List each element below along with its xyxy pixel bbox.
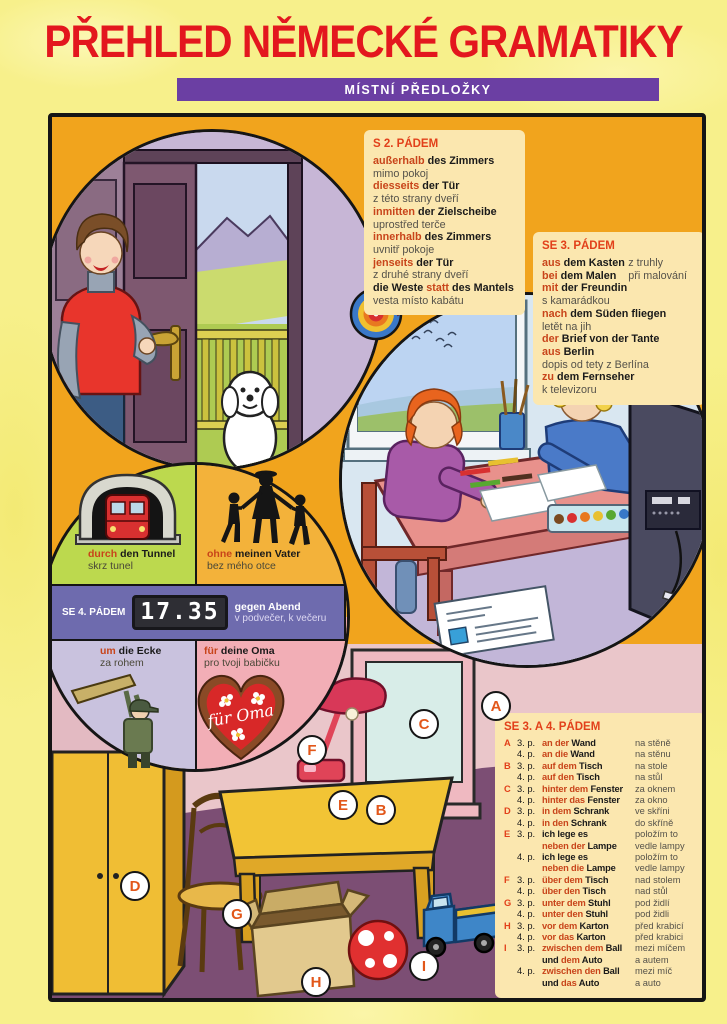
german-text: die Weste bbox=[373, 282, 426, 294]
phrase-line: letět na jih bbox=[542, 321, 696, 334]
preposition: hinter das bbox=[542, 795, 585, 805]
brush-cup bbox=[500, 413, 524, 449]
german-text: der Freundin bbox=[558, 282, 627, 294]
case-label: 4. p. bbox=[517, 909, 542, 920]
czech-text: z této strany dveří bbox=[373, 193, 459, 205]
case-label: 4. p. bbox=[517, 818, 542, 829]
german-text: der Tür bbox=[413, 257, 453, 269]
german-text: der Tür bbox=[419, 180, 459, 192]
row-letter bbox=[504, 818, 517, 829]
german-phrase: neben die Lampe bbox=[542, 863, 635, 874]
czech-text: vesta místo kabátu bbox=[373, 295, 464, 307]
table-row: 4. p.über den Tischnad stůl bbox=[504, 886, 697, 897]
czech-translation: na stěně bbox=[635, 738, 697, 749]
row-letter bbox=[504, 841, 517, 852]
german-phrase: zwischen den Ball bbox=[542, 966, 635, 977]
ball bbox=[349, 921, 407, 979]
phrase-line: s kamarádkou bbox=[542, 295, 696, 308]
row-letter bbox=[504, 795, 517, 806]
preposition: auf den bbox=[542, 772, 574, 782]
czech-translation: pod židlí bbox=[635, 898, 697, 909]
preposition: an der bbox=[542, 738, 569, 748]
german-phrase: auf den Tisch bbox=[542, 772, 635, 783]
case-label: 3. p. bbox=[517, 761, 542, 772]
subtitle-banner: MÍSTNÍ PŘEDLOŽKY bbox=[177, 78, 659, 101]
se3-lines: aus dem Kastenz truhlybei dem Malenpři m… bbox=[542, 257, 696, 397]
table-row: 4. p.ich lege espoložím to bbox=[504, 852, 697, 863]
german-text: meinen Vater bbox=[232, 548, 300, 560]
dog-icon bbox=[222, 372, 278, 468]
se34-heading: SE 3. A 4. PÁDEM bbox=[504, 721, 697, 733]
german-text: dem Kasten bbox=[561, 257, 625, 269]
czech-text: mimo pokoj bbox=[373, 168, 428, 180]
case-label: 3. p. bbox=[517, 875, 542, 886]
preposition: durch bbox=[88, 548, 117, 560]
phrase-line: vesta místo kabátu bbox=[373, 295, 516, 308]
phrase-line: uprostřed terče bbox=[373, 219, 516, 232]
row-letter: I bbox=[504, 943, 517, 954]
preposition: neben die bbox=[542, 863, 584, 873]
case-label: 3. p. bbox=[517, 806, 542, 817]
german-text: den Tunnel bbox=[117, 548, 175, 560]
czech-translation: položím to bbox=[635, 829, 697, 840]
german-phrase: über dem Tisch bbox=[542, 875, 635, 886]
row-letter bbox=[504, 955, 517, 966]
german-phrase: zwischen dem Ball bbox=[542, 943, 635, 954]
phrase-line: diesseits der Tür bbox=[373, 180, 516, 193]
preposition: außerhalb bbox=[373, 155, 425, 167]
table-row: 4. p.vor das Kartonpřed krabici bbox=[504, 932, 697, 943]
german-phrase: vor dem Karton bbox=[542, 921, 635, 932]
letter-badge-F: F bbox=[297, 735, 327, 765]
german-text: Wand bbox=[568, 749, 595, 759]
grammar-poster: { "title": "PŘEHLED NĚMECKÉ GRAMATIKY", … bbox=[0, 0, 727, 1024]
czech-text: k televizoru bbox=[542, 384, 597, 396]
table-row: H3. p.vor dem Kartonpřed krabicí bbox=[504, 921, 697, 932]
caption-um: um die Eckeza rohem bbox=[100, 645, 161, 669]
phrase-line: aus Berlin bbox=[542, 346, 696, 359]
german-text: des Zimmers bbox=[422, 231, 492, 243]
row-letter: H bbox=[504, 921, 517, 932]
german-text: der Zielscheibe bbox=[415, 206, 497, 218]
row-letter bbox=[504, 932, 517, 943]
gingerbread-heart: für Oma bbox=[190, 669, 292, 764]
phrase-line: nach dem Süden fliegen bbox=[542, 308, 696, 321]
caption-durch: durch den Tunnelskrz tunel bbox=[88, 548, 175, 572]
czech-translation: nad stůl bbox=[635, 886, 697, 897]
czech-translation: před krabici bbox=[635, 932, 697, 943]
se34-section: SE 3. A 4. PÁDEM A3. p.an der Wandna stě… bbox=[495, 713, 706, 998]
table-row: D3. p.in dem Schrankve skříni bbox=[504, 806, 697, 817]
row-letter: G bbox=[504, 898, 517, 909]
german-text: Tisch bbox=[574, 772, 600, 782]
se3-section: SE 3. PÁDEM aus dem Kastenz truhlybei de… bbox=[533, 232, 705, 405]
czech-text: letět na jih bbox=[542, 321, 591, 333]
czech-translation: pod židli bbox=[635, 909, 697, 920]
row-letter bbox=[504, 863, 517, 874]
czech-translation: ve skříni bbox=[635, 806, 697, 817]
case-label: 4. p. bbox=[517, 749, 542, 760]
czech-translation: položím to bbox=[635, 852, 697, 863]
case-label bbox=[517, 841, 542, 852]
czech-text: dopis od tety z Berlína bbox=[542, 359, 649, 371]
czech-text: z druhé strany dveří bbox=[373, 269, 468, 281]
phrase-line: bei dem Malenpři malování bbox=[542, 270, 696, 283]
row-letter: B bbox=[504, 761, 517, 772]
table-row: 4. p.zwischen den Ballmezi míč bbox=[504, 966, 697, 977]
german-text: Schrank bbox=[568, 818, 606, 828]
preposition: für bbox=[204, 645, 218, 657]
preposition: in dem bbox=[542, 806, 571, 816]
se3-heading: SE 3. PÁDEM bbox=[542, 240, 696, 252]
door-scene-illustration bbox=[48, 132, 380, 468]
row-letter: A bbox=[504, 738, 517, 749]
table-row: neben der Lampevedle lampy bbox=[504, 841, 697, 852]
family-silhouette-icon bbox=[204, 467, 329, 547]
case-label: 4. p. bbox=[517, 852, 542, 863]
tv-icon bbox=[630, 391, 706, 643]
preposition: mit bbox=[542, 282, 558, 294]
letter-badge-C: C bbox=[409, 709, 439, 739]
german-phrase: und dem Auto bbox=[542, 955, 635, 966]
german-phrase: ich lege es bbox=[542, 852, 635, 863]
table-row: G3. p.unter dem Stuhlpod židlí bbox=[504, 898, 697, 909]
german-text: Tisch bbox=[583, 875, 609, 885]
table-row: A3. p.an der Wandna stěně bbox=[504, 738, 697, 749]
table-row: B3. p.auf dem Tischna stole bbox=[504, 761, 697, 772]
letter-badge-A: A bbox=[481, 691, 511, 721]
table-row: C3. p.hinter dem Fensterza oknem bbox=[504, 784, 697, 795]
phrase-line: jenseits der Tür bbox=[373, 257, 516, 270]
band-german-phrase: gegen Abend bbox=[235, 601, 327, 613]
german-text: ich lege es bbox=[542, 829, 588, 839]
preposition: nach bbox=[542, 308, 567, 320]
czech-translation: na stěnu bbox=[635, 749, 697, 760]
czech-translation: mezi míčem bbox=[635, 943, 697, 954]
preposition: aus bbox=[542, 346, 561, 358]
woman-hand bbox=[139, 338, 155, 354]
german-text: dem Malen bbox=[558, 270, 617, 282]
table-row: 4. p.an die Wandna stěnu bbox=[504, 749, 697, 760]
table-row: neben die Lampevedle lampy bbox=[504, 863, 697, 874]
case-label: 4. p. bbox=[517, 886, 542, 897]
se4-heading: SE 4. PÁDEM bbox=[62, 607, 125, 618]
german-phrase: über den Tisch bbox=[542, 886, 635, 897]
german-text: Brief von der Tante bbox=[559, 333, 660, 345]
door-scene-circle bbox=[48, 129, 383, 471]
preposition: zwischen dem bbox=[542, 943, 603, 953]
german-phrase: auf dem Tisch bbox=[542, 761, 635, 772]
phrase-line: zu dem Fernseher bbox=[542, 371, 696, 384]
band-czech-translation: v podvečer, k večeru bbox=[235, 613, 327, 625]
german-text: Wand bbox=[569, 738, 596, 748]
czech-translation: vedle lampy bbox=[635, 841, 697, 852]
preposition: zwischen den bbox=[542, 966, 601, 976]
preposition: an die bbox=[542, 749, 568, 759]
row-letter bbox=[504, 772, 517, 783]
table-row: 4. p.hinter das Fensterza okno bbox=[504, 795, 697, 806]
phrase-line: innerhalb des Zimmers bbox=[373, 231, 516, 244]
czech-text: s kamarádkou bbox=[542, 295, 610, 307]
german-text: Stuhl bbox=[583, 909, 608, 919]
german-text: des Mantels bbox=[449, 282, 514, 294]
table-row: 4. p.auf den Tischna stůl bbox=[504, 772, 697, 783]
preposition: aus bbox=[542, 257, 561, 269]
case-label: 4. p. bbox=[517, 932, 542, 943]
czech-translation: za okno bbox=[635, 795, 697, 806]
case-label: 4. p. bbox=[517, 795, 542, 806]
german-phrase: in den Schrank bbox=[542, 818, 635, 829]
preposition: der bbox=[542, 333, 559, 345]
german-text: und bbox=[542, 978, 561, 988]
preposition: über dem bbox=[542, 875, 583, 885]
preposition: jenseits bbox=[373, 257, 413, 269]
german-phrase: hinter das Fenster bbox=[542, 795, 635, 806]
main-panel: für Oma SE 4. PÁDEM 17.35 gegen Abend v … bbox=[48, 113, 706, 1002]
stamp bbox=[449, 627, 468, 644]
case-label: 3. p. bbox=[517, 943, 542, 954]
table-row: I3. p.zwischen dem Ballmezi míčem bbox=[504, 943, 697, 954]
phrase-line: k televizoru bbox=[542, 384, 696, 397]
table-row: und das Autoa auto bbox=[504, 978, 697, 989]
preposition: dem bbox=[561, 955, 580, 965]
czech-translation: z truhly bbox=[628, 257, 663, 270]
case-label bbox=[517, 978, 542, 989]
czech-translation: na stole bbox=[635, 761, 697, 772]
table-row: 4. p.in den Schrankdo skříně bbox=[504, 818, 697, 829]
preposition: zu bbox=[542, 371, 554, 383]
preposition: vor dem bbox=[542, 921, 577, 931]
row-letter bbox=[504, 852, 517, 863]
german-text: Stuhl bbox=[586, 898, 611, 908]
preposition: in den bbox=[542, 818, 568, 828]
german-text: die Ecke bbox=[116, 645, 162, 657]
row-letter: F bbox=[504, 875, 517, 886]
czech-translation: a auto bbox=[635, 978, 697, 989]
german-text: Fenster bbox=[588, 784, 623, 794]
czech-translation: při malování bbox=[628, 270, 687, 283]
robber-with-club-icon bbox=[70, 673, 170, 768]
phrase-line: außerhalb des Zimmers bbox=[373, 155, 516, 168]
german-phrase: hinter dem Fenster bbox=[542, 784, 635, 795]
preposition: inmitten bbox=[373, 206, 415, 218]
phrase-line: der Brief von der Tante bbox=[542, 333, 696, 346]
phrase-line: z této strany dveří bbox=[373, 193, 516, 206]
czech-translation: do skříně bbox=[635, 818, 697, 829]
row-letter bbox=[504, 886, 517, 897]
preposition: auf dem bbox=[542, 761, 577, 771]
german-text: deine Oma bbox=[218, 645, 275, 657]
caption-ohne: ohne meinen Vaterbez mého otce bbox=[207, 548, 300, 572]
case-label bbox=[517, 955, 542, 966]
phrase-line: uvnitř pokoje bbox=[373, 244, 516, 257]
table-row: F3. p.über dem Tischnad stolem bbox=[504, 875, 697, 886]
german-text: Berlin bbox=[561, 346, 595, 358]
czech-translation: na stůl bbox=[635, 772, 697, 783]
preposition: vor das bbox=[542, 932, 574, 942]
czech-translation: mezi míč bbox=[635, 966, 697, 977]
table-row: und dem Autoa autem bbox=[504, 955, 697, 966]
row-letter: E bbox=[504, 829, 517, 840]
letter-badge-H: H bbox=[301, 967, 331, 997]
phrase-line: die Weste statt des Mantels bbox=[373, 282, 516, 295]
train-icon bbox=[106, 495, 149, 539]
preposition: neben der bbox=[542, 841, 585, 851]
german-phrase: ich lege es bbox=[542, 829, 635, 840]
german-text: Ball bbox=[603, 943, 622, 953]
preposition: statt bbox=[426, 282, 449, 294]
preposition: diesseits bbox=[373, 180, 419, 192]
s2-heading: S 2. PÁDEM bbox=[373, 138, 516, 150]
german-text: dem Fernseher bbox=[554, 371, 634, 383]
preposition: unter dem bbox=[542, 898, 586, 908]
case-label: 3. p. bbox=[517, 898, 542, 909]
german-text: des Zimmers bbox=[425, 155, 495, 167]
german-text: Auto bbox=[580, 955, 603, 965]
german-text: Lampe bbox=[584, 863, 616, 873]
s2-lines: außerhalb des Zimmersmimo pokojdiesseits… bbox=[373, 155, 516, 307]
row-letter bbox=[504, 909, 517, 920]
german-phrase: an der Wand bbox=[542, 738, 635, 749]
digital-clock: 17.35 bbox=[132, 595, 227, 630]
german-phrase: unter den Stuhl bbox=[542, 909, 635, 920]
row-letter bbox=[504, 966, 517, 977]
czech-text: uvnitř pokoje bbox=[373, 244, 434, 256]
czech-translation: nad stolem bbox=[635, 875, 697, 886]
preposition: ohne bbox=[207, 548, 232, 560]
czech-translation: za oknem bbox=[635, 784, 697, 795]
wardrobe bbox=[52, 738, 184, 994]
case-label: 4. p. bbox=[517, 966, 542, 977]
case-label: 3. p. bbox=[517, 738, 542, 749]
tunnel-train-icon bbox=[70, 469, 185, 547]
german-phrase: und das Auto bbox=[542, 978, 635, 989]
german-text: Schrank bbox=[571, 806, 609, 816]
german-text: und bbox=[542, 955, 561, 965]
preposition: das bbox=[561, 978, 577, 988]
case-label bbox=[517, 863, 542, 874]
caption-fuer: für deine Omapro tvoji babičku bbox=[204, 645, 280, 669]
case-label: 3. p. bbox=[517, 921, 542, 932]
table-row: E3. p.ich lege espoložím to bbox=[504, 829, 697, 840]
german-text: Auto bbox=[577, 978, 600, 988]
czech-translation: a autem bbox=[635, 955, 697, 966]
phrase-line: mit der Freundin bbox=[542, 282, 696, 295]
german-phrase: an die Wand bbox=[542, 749, 635, 760]
german-text: Karton bbox=[574, 932, 606, 942]
poster-title: PŘEHLED NĚMECKÉ GRAMATIKY bbox=[36, 16, 690, 68]
czech-translation: před krabicí bbox=[635, 921, 697, 932]
german-phrase: vor das Karton bbox=[542, 932, 635, 943]
letter-badge-G: G bbox=[222, 899, 252, 929]
phrase-line: aus dem Kastenz truhly bbox=[542, 257, 696, 270]
german-phrase: neben der Lampe bbox=[542, 841, 635, 852]
czech-translation: vedle lampy bbox=[635, 863, 697, 874]
letter-badge-D: D bbox=[120, 871, 150, 901]
german-text: Tisch bbox=[580, 886, 606, 896]
letter-badge-B: B bbox=[366, 795, 396, 825]
german-phrase: unter dem Stuhl bbox=[542, 898, 635, 909]
table-row: 4. p.unter den Stuhlpod židli bbox=[504, 909, 697, 920]
german-text: Lampe bbox=[585, 841, 617, 851]
se4-band: SE 4. PÁDEM 17.35 gegen Abend v podvečer… bbox=[50, 584, 346, 641]
german-text: Karton bbox=[577, 921, 609, 931]
german-text: Fenster bbox=[585, 795, 620, 805]
row-letter: C bbox=[504, 784, 517, 795]
letter-badge-I: I bbox=[409, 951, 439, 981]
phrase-line: inmitten der Zielscheibe bbox=[373, 206, 516, 219]
s2-section: S 2. PÁDEM außerhalb des Zimmersmimo pok… bbox=[364, 130, 525, 315]
row-letter bbox=[504, 749, 517, 760]
german-text: Tisch bbox=[577, 761, 603, 771]
row-letter: D bbox=[504, 806, 517, 817]
phrase-line: mimo pokoj bbox=[373, 168, 516, 181]
preposition: hinter dem bbox=[542, 784, 588, 794]
case-label: 3. p. bbox=[517, 829, 542, 840]
german-text: dem Süden fliegen bbox=[567, 308, 666, 320]
german-text: ich lege es bbox=[542, 852, 588, 862]
preposition: innerhalb bbox=[373, 231, 422, 243]
paint-palette bbox=[548, 505, 642, 532]
row-letter bbox=[504, 978, 517, 989]
letter-badge-E: E bbox=[328, 790, 358, 820]
german-text: Ball bbox=[601, 966, 620, 976]
phrase-line: dopis od tety z Berlína bbox=[542, 359, 696, 372]
phrase-line: z druhé strany dveří bbox=[373, 269, 516, 282]
german-phrase: in dem Schrank bbox=[542, 806, 635, 817]
preposition: über den bbox=[542, 886, 580, 896]
czech-text: uprostřed terče bbox=[373, 219, 446, 231]
case-label: 4. p. bbox=[517, 772, 542, 783]
preposition: um bbox=[100, 645, 116, 657]
preposition: unter den bbox=[542, 909, 583, 919]
case-label: 3. p. bbox=[517, 784, 542, 795]
se34-table: A3. p.an der Wandna stěně4. p.an die Wan… bbox=[504, 738, 697, 989]
preposition: bei bbox=[542, 270, 558, 282]
